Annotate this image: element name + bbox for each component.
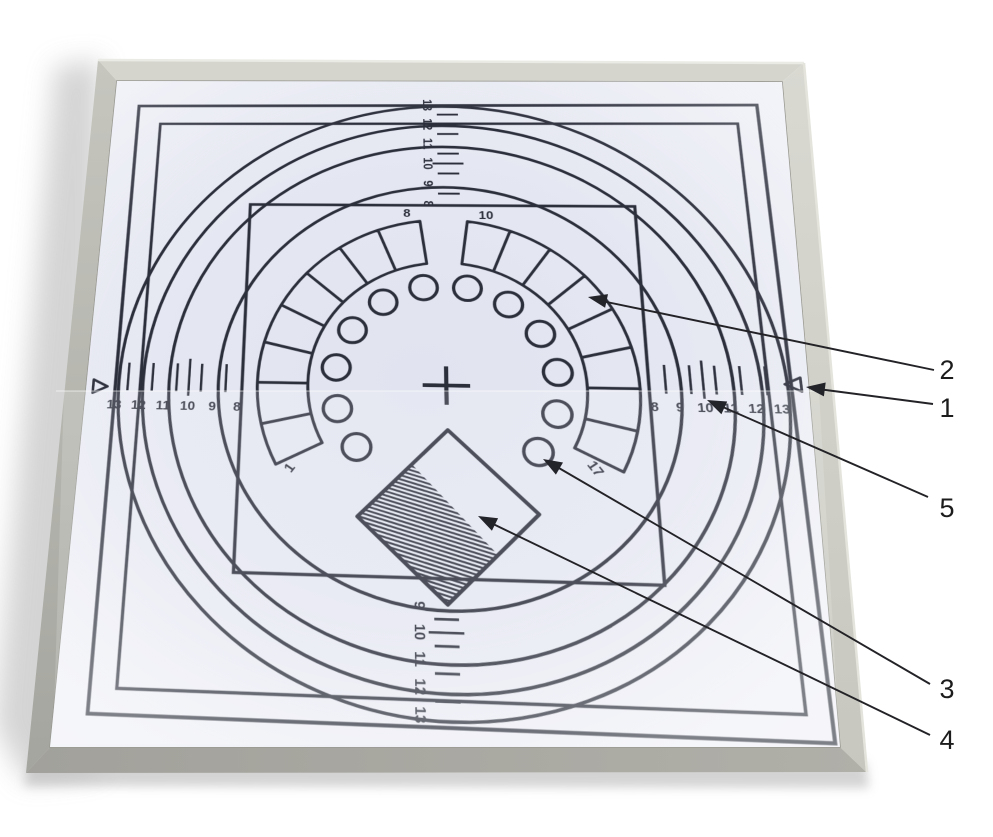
svg-text:2: 2	[939, 355, 954, 385]
svg-text:1: 1	[939, 393, 954, 423]
svg-text:3: 3	[939, 674, 954, 704]
svg-text:4: 4	[939, 725, 954, 755]
svg-text:5: 5	[939, 493, 954, 523]
